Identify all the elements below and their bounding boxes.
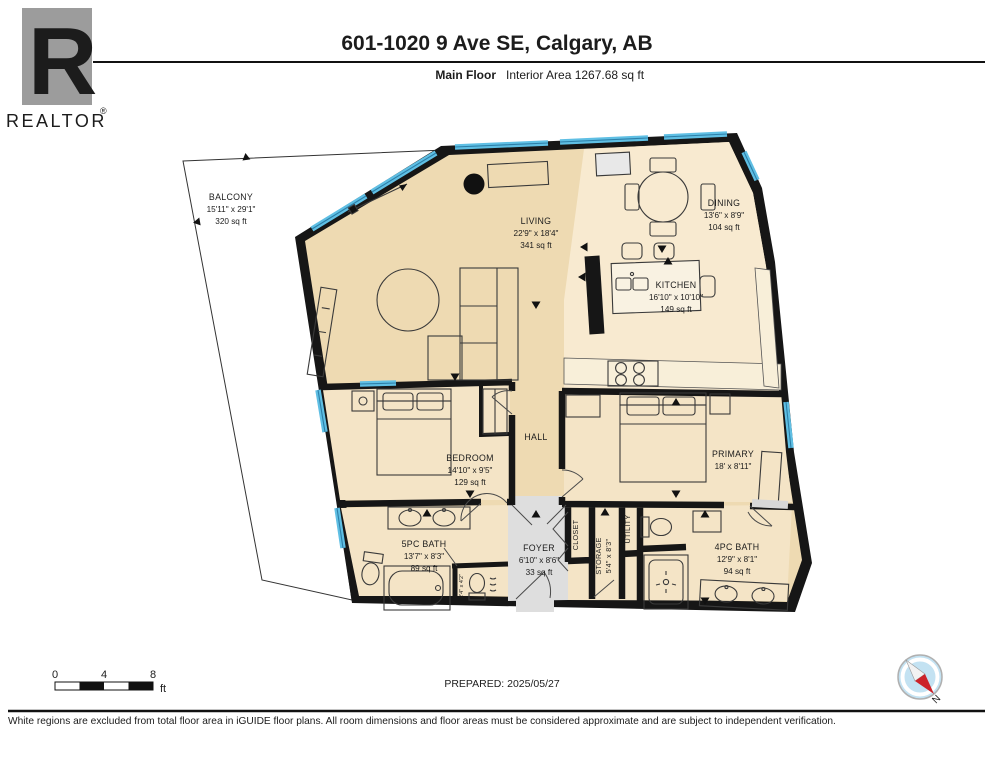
scale-bar: 0 4 8 ft	[52, 669, 166, 695]
realtor-logo-letter: R	[28, 8, 97, 115]
svg-text:94 sq ft: 94 sq ft	[724, 567, 752, 576]
floor-plan: BALCONY 15'11" x 29'1" 320 sq ft LIVING …	[183, 133, 812, 612]
primary-floor	[564, 392, 792, 502]
svg-text:PRIMARY: PRIMARY	[712, 449, 754, 459]
svg-text:104 sq ft: 104 sq ft	[708, 223, 740, 232]
prepared-date: PREPARED: 2025/05/27	[444, 678, 560, 690]
svg-text:22'9" x 18'4": 22'9" x 18'4"	[514, 229, 559, 238]
wc-dims-label: 2'4" x 4'2"	[459, 574, 465, 598]
svg-text:129 sq ft: 129 sq ft	[454, 478, 486, 487]
svg-text:14'10" x 9'5": 14'10" x 9'5"	[448, 466, 493, 475]
svg-text:4PC BATH: 4PC BATH	[715, 542, 760, 552]
svg-text:LIVING: LIVING	[521, 216, 552, 226]
svg-text:5PC BATH: 5PC BATH	[402, 539, 447, 549]
closet-label: CLOSET	[571, 519, 580, 550]
svg-text:12'9" x 8'1": 12'9" x 8'1"	[717, 555, 757, 564]
hall-label: HALL	[524, 432, 547, 442]
svg-text:KITCHEN: KITCHEN	[656, 280, 697, 290]
svg-text:DINING: DINING	[708, 198, 741, 208]
floorplan-page: R REALTOR ® 601-1020 9 Ave SE, Calgary, …	[0, 0, 993, 768]
storage-label: STORAGE 5'4" x 8'3"	[594, 537, 613, 574]
compass-icon: N	[898, 655, 943, 706]
interior-area-label: Interior Area 1267.68 sq ft	[506, 68, 645, 82]
svg-text:BALCONY: BALCONY	[209, 192, 253, 202]
column-dot	[464, 174, 485, 195]
svg-text:13'7" x 8'3": 13'7" x 8'3"	[404, 552, 444, 561]
buffet-icon	[595, 152, 630, 176]
kitchen-wall-stub	[592, 256, 597, 334]
svg-text:16'10" x 10'10": 16'10" x 10'10"	[649, 293, 703, 302]
svg-text:13'6" x 8'9": 13'6" x 8'9"	[704, 211, 744, 220]
scale-unit: ft	[160, 683, 166, 695]
entry-landing	[516, 600, 554, 612]
hall-threshold	[514, 496, 562, 505]
svg-text:33 sq ft: 33 sq ft	[526, 568, 554, 577]
registered-mark: ®	[100, 106, 107, 116]
svg-text:STORAGE: STORAGE	[594, 537, 603, 574]
page-title: 601-1020 9 Ave SE, Calgary, AB	[341, 32, 652, 55]
svg-text:341 sq ft: 341 sq ft	[520, 241, 552, 250]
svg-text:5'4" x 8'3": 5'4" x 8'3"	[604, 538, 613, 573]
svg-text:149 sq ft: 149 sq ft	[660, 305, 692, 314]
svg-text:FOYER: FOYER	[523, 543, 555, 553]
scale-tick-4: 4	[101, 669, 107, 681]
scale-tick-0: 0	[52, 669, 58, 681]
realtor-logo: R REALTOR ®	[6, 8, 107, 131]
svg-text:BEDROOM: BEDROOM	[446, 453, 494, 463]
svg-text:18' x 8'11": 18' x 8'11"	[715, 462, 752, 471]
utility-label: UTILITY	[623, 515, 632, 544]
compass-north-label: N	[930, 693, 943, 706]
disclaimer-text: White regions are excluded from total fl…	[8, 716, 836, 727]
scale-tick-8: 8	[150, 669, 156, 681]
svg-text:15'11" x 29'1": 15'11" x 29'1"	[207, 205, 256, 214]
svg-text:89 sq ft: 89 sq ft	[411, 564, 439, 573]
floor-label: Main Floor	[435, 68, 496, 82]
svg-text:320 sq ft: 320 sq ft	[215, 217, 247, 226]
svg-text:6'10" x 8'6": 6'10" x 8'6"	[519, 556, 559, 565]
dining-label: DINING 13'6" x 8'9" 104 sq ft	[704, 198, 744, 232]
kitchen-counter	[564, 358, 781, 390]
realtor-logo-word: REALTOR	[6, 111, 107, 131]
